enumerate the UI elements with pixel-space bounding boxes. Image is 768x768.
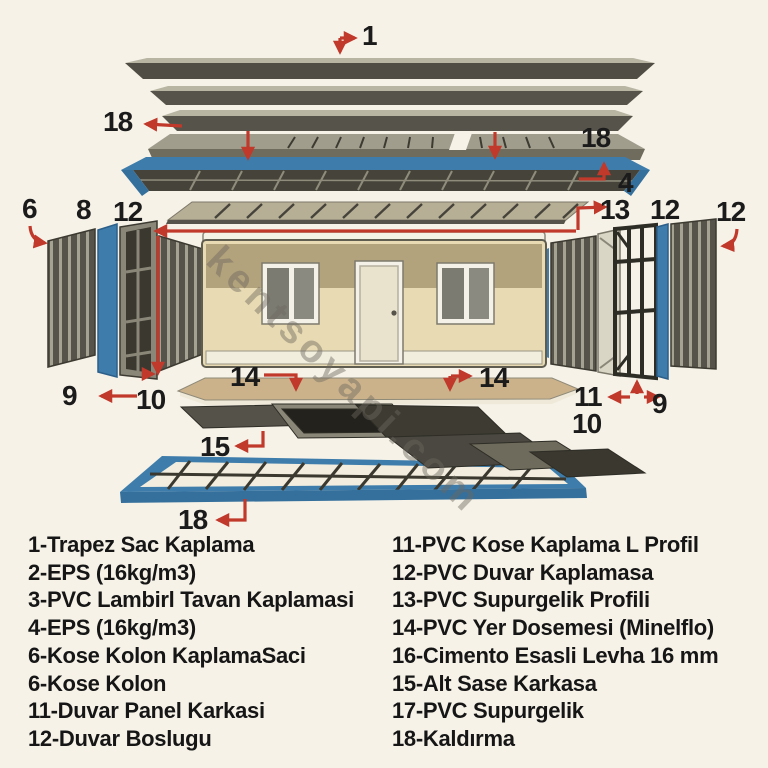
legend-item: 16-Cimento Esasli Levha 16 mm — [392, 642, 718, 670]
window-left — [262, 263, 319, 324]
diagram-graphics — [0, 0, 768, 530]
legend-item: 3-PVC Lambirl Tavan Kaplamasi — [28, 586, 354, 614]
wall-eps-blue-right — [657, 224, 668, 379]
legend-item: 6-Kose Kolon KaplamaSaci — [28, 642, 354, 670]
door-knob — [391, 310, 396, 315]
ceiling-hatched-panel — [166, 202, 588, 224]
callout-12-left: 12 — [113, 198, 142, 226]
callout-10-right: 10 — [572, 410, 601, 438]
legend-item: 15-Alt Sase Karkasa — [392, 670, 718, 698]
roof-ribbed-panel — [148, 133, 645, 160]
legend-item: 4-EPS (16kg/m3) — [28, 614, 354, 642]
legend-item: 11-PVC Kose Kaplama L Profil — [392, 531, 718, 559]
building — [202, 240, 546, 367]
legend-item: 14-PVC Yer Dosemesi (Minelflo) — [392, 614, 718, 642]
callout-12-far-right: 12 — [716, 198, 745, 226]
callout-12-right-mid: 12 — [650, 196, 679, 224]
door — [355, 261, 403, 364]
callout-10-left: 10 — [136, 386, 165, 414]
legend-right-column: 11-PVC Kose Kaplama L Profil 12-PVC Duva… — [392, 531, 718, 753]
roof-frame-blue — [121, 157, 650, 196]
legend-item: 12-Duvar Boslugu — [28, 725, 354, 753]
legend-item: 18-Kaldırma — [392, 725, 718, 753]
wall-corrugated-left-inner — [159, 236, 203, 371]
legend-item: 6-Kose Kolon — [28, 670, 354, 698]
callout-9-right: 9 — [652, 390, 667, 418]
callout-13: 13 — [600, 196, 629, 224]
exploded-container-house-diagram: kentsoyapi.com 1 18 18 4 13 12 12 6 8 12… — [0, 0, 768, 768]
callout-15: 15 — [200, 433, 229, 461]
callout-1: 1 — [362, 22, 377, 50]
wall-corrugated-left-outer — [48, 229, 95, 367]
callout-11-right: 11 — [574, 383, 602, 411]
window-right — [437, 263, 494, 324]
wall-corrugated-right-outer — [671, 219, 716, 369]
legend-item: 1-Trapez Sac Kaplama — [28, 531, 354, 559]
wall-corrugated-right-inner — [551, 236, 596, 371]
callout-9-left: 9 — [62, 382, 77, 410]
legend-left-column: 1-Trapez Sac Kaplama 2-EPS (16kg/m3) 3-P… — [28, 531, 354, 753]
callout-8: 8 — [76, 196, 91, 224]
callout-4: 4 — [618, 169, 633, 197]
roof-sheet-2 — [150, 86, 643, 105]
legend-item: 13-PVC Supurgelik Profili — [392, 586, 718, 614]
callout-18-top-right: 18 — [581, 124, 610, 152]
callout-6: 6 — [22, 195, 37, 223]
wall-eps-blue-left — [98, 224, 117, 377]
callout-18-top-left: 18 — [103, 108, 132, 136]
roof-sheet-1 — [125, 58, 655, 79]
callout-14-left: 14 — [230, 363, 259, 391]
wall-frame-panel-left — [120, 221, 157, 379]
roof-sheet-3 — [162, 110, 633, 131]
callout-18-bottom: 18 — [178, 506, 207, 534]
legend-item: 12-PVC Duvar Kaplamasa — [392, 559, 718, 587]
legend-item: 17-PVC Supurgelik — [392, 697, 718, 725]
callout-14-right: 14 — [479, 364, 508, 392]
legend-item: 2-EPS (16kg/m3) — [28, 559, 354, 587]
wall-open-frame-right — [615, 225, 656, 378]
legend-item: 11-Duvar Panel Karkasi — [28, 697, 354, 725]
